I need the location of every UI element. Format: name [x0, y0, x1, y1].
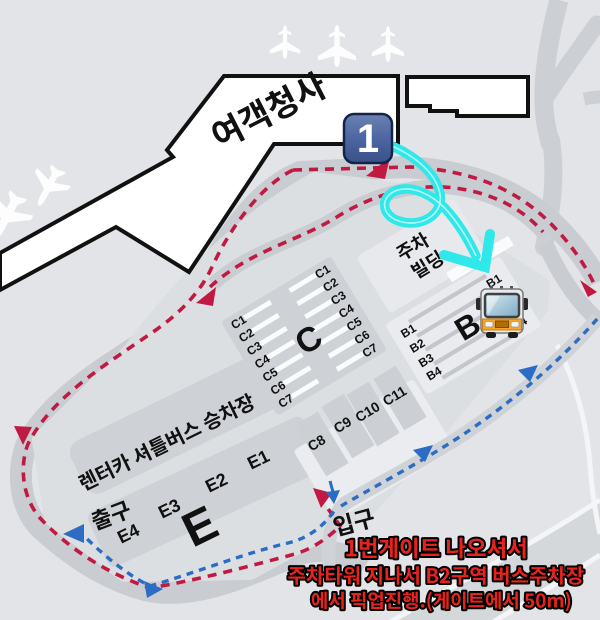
svg-text:1: 1: [357, 117, 379, 161]
